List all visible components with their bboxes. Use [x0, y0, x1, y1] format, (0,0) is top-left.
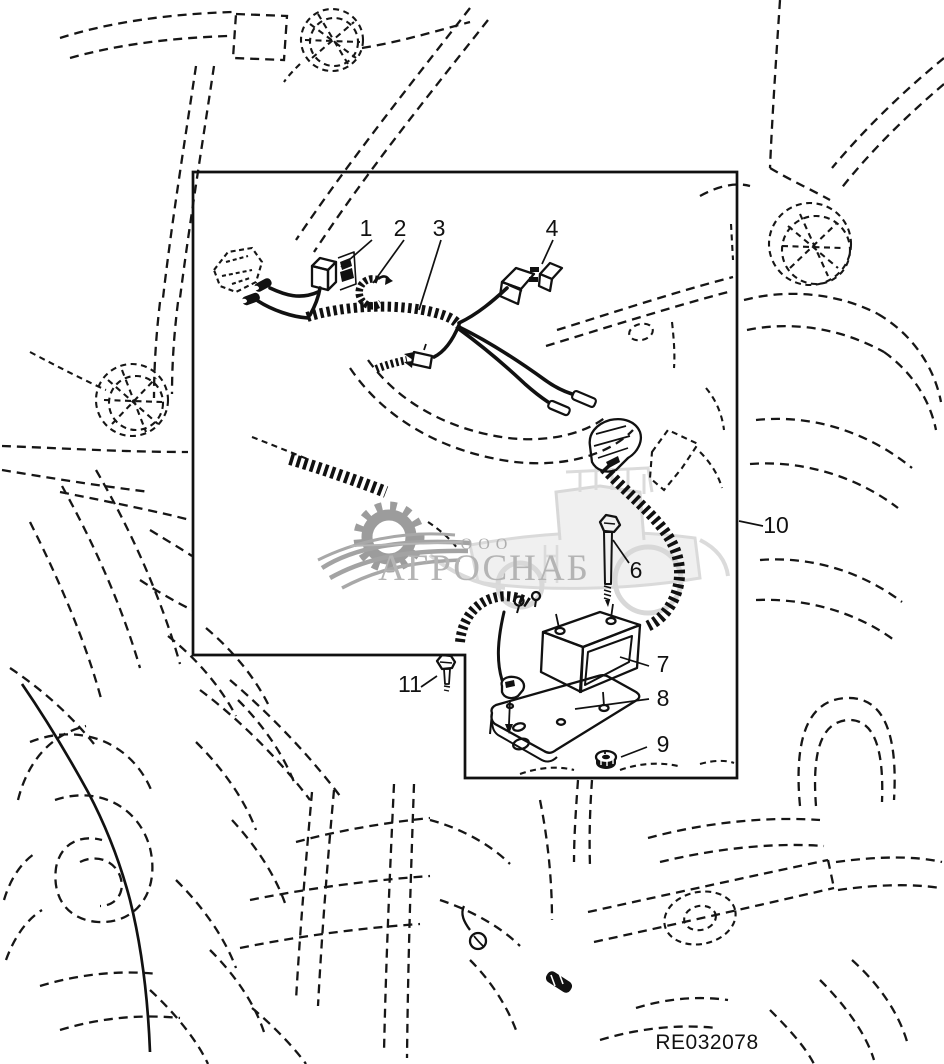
callout-label-6: 6 [630, 557, 643, 583]
connector-4 [529, 263, 562, 291]
bracket [490, 675, 639, 761]
hitch-assembly [200, 680, 592, 1058]
work-light-top [284, 9, 363, 82]
callout-label-3: 3 [433, 215, 446, 241]
callout-label-4: 4 [546, 215, 559, 241]
diagram-canvas: ООО АГРОСНАБ [0, 0, 944, 1064]
wire-sleeve-1 [571, 390, 597, 408]
clevis-pin [544, 969, 574, 994]
wire-sleeve-2 [547, 400, 570, 416]
work-light-left [30, 352, 168, 436]
spring-clip [359, 276, 393, 306]
boot-connector [590, 419, 641, 471]
callout-label-8: 8 [657, 685, 670, 711]
callout-label-2: 2 [394, 215, 407, 241]
callout-label-10: 10 [763, 512, 789, 538]
nut [596, 750, 616, 769]
detail-box-border [193, 172, 737, 778]
left-wheel [4, 470, 306, 1064]
tractor-outline [2, 0, 944, 1064]
small-bulb [462, 906, 486, 949]
striped-bar [290, 459, 386, 492]
watermark-org-name: АГРОСНАБ [378, 548, 590, 589]
lamp [541, 604, 640, 706]
callout-label-9: 9 [657, 731, 670, 757]
parts-diagram-page: ООО АГРОСНАБ [0, 0, 944, 1064]
bolt-11 [437, 655, 455, 691]
drawbar [462, 819, 942, 995]
part-number: RE032078 [655, 1031, 758, 1054]
work-light-right [769, 203, 851, 285]
connector-lower [404, 344, 432, 368]
callout-label-11: 11 [398, 671, 422, 697]
relay [312, 252, 356, 290]
connector-top [500, 268, 534, 304]
conduit-lamp [460, 596, 528, 642]
callout-label-7: 7 [657, 651, 670, 677]
conduit-main [307, 307, 459, 325]
callout-label-1: 1 [360, 215, 373, 241]
